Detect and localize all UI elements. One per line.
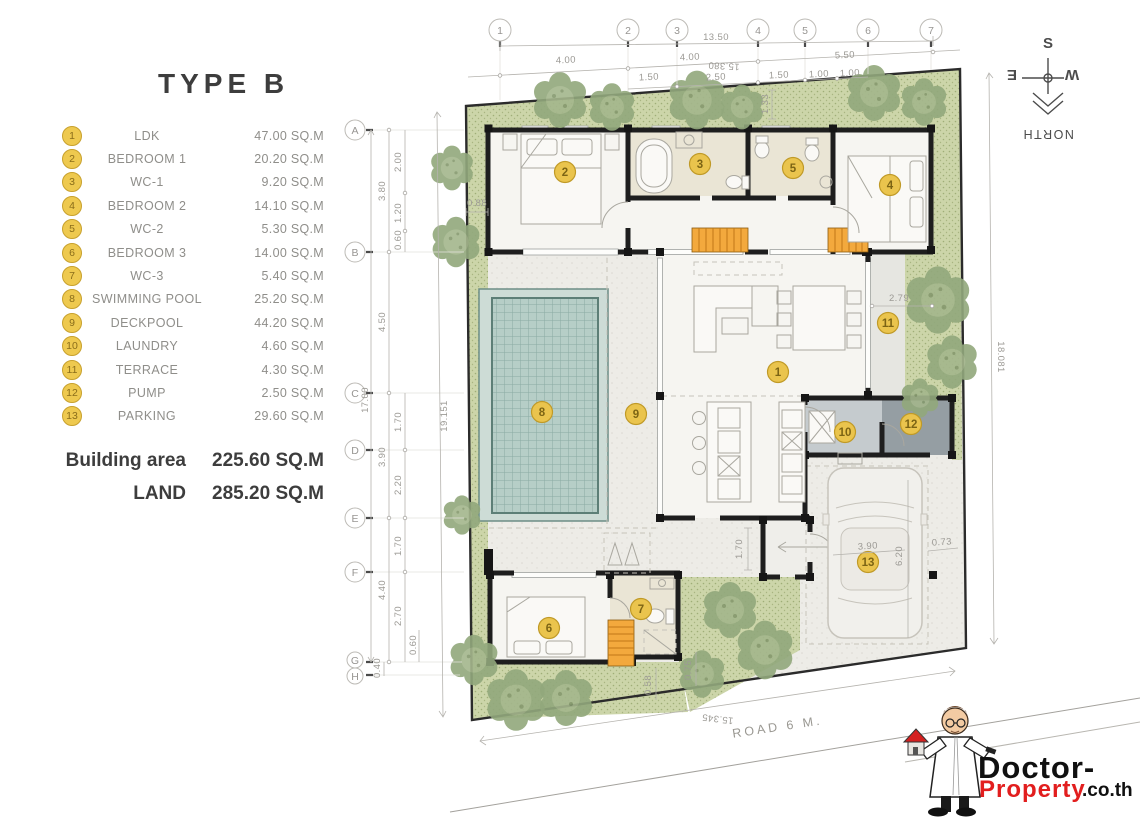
svg-text:1.70: 1.70	[393, 412, 404, 432]
legend-number-badge: 2	[62, 149, 82, 169]
svg-text:3: 3	[674, 25, 680, 37]
svg-text:E: E	[351, 513, 358, 525]
brand-domain-suffix: .co.th	[1082, 780, 1133, 801]
marker-wc3: 7	[631, 599, 652, 620]
svg-text:0.60: 0.60	[408, 635, 419, 655]
legend-number-badge: 11	[62, 360, 82, 380]
svg-text:2.79: 2.79	[889, 293, 909, 304]
legend-room-name: PUMP	[82, 386, 212, 400]
svg-text:D: D	[351, 445, 359, 457]
car-parking	[823, 468, 927, 638]
svg-text:1.33: 1.33	[760, 94, 771, 114]
svg-text:H: H	[351, 671, 359, 683]
grid-row-f: F	[345, 562, 365, 582]
svg-text:0.75: 0.75	[683, 660, 694, 680]
legend-number-badge: 6	[62, 243, 82, 263]
land-area-row: LAND 285.20 SQ.M	[62, 483, 324, 505]
svg-text:2.00: 2.00	[393, 152, 404, 172]
svg-text:4.00: 4.00	[556, 54, 577, 66]
svg-text:2.20: 2.20	[393, 475, 404, 495]
legend-room-area: 47.00 SQ.M	[212, 129, 324, 143]
marker-terrace: 11	[878, 313, 899, 334]
grid-col-4: 4	[747, 19, 769, 41]
marker-deckpool: 9	[626, 404, 647, 425]
building-area-value: 225.60 SQ.M	[198, 450, 324, 472]
area-summary: Building area 225.60 SQ.M LAND 285.20 SQ…	[62, 450, 324, 505]
svg-text:1: 1	[497, 25, 503, 37]
legend-room-name: DECKPOOL	[82, 316, 212, 330]
svg-text:1.70: 1.70	[393, 536, 404, 556]
svg-text:7: 7	[928, 25, 934, 37]
svg-text:1.20: 1.20	[393, 203, 404, 223]
svg-text:1.00: 1.00	[840, 67, 861, 79]
legend-room-area: 29.60 SQ.M	[212, 409, 324, 423]
svg-text:3.80: 3.80	[377, 181, 388, 201]
legend-room-area: 9.20 SQ.M	[212, 175, 324, 189]
compass: S E W NORTH	[1007, 35, 1079, 141]
svg-text:F: F	[352, 567, 358, 579]
watermark-logo: Doctor- Property .co.th	[904, 706, 1140, 817]
washer-laundry	[809, 411, 835, 443]
marker-bedroom2: 4	[880, 175, 901, 196]
legend-room-name: WC-3	[82, 269, 212, 283]
grid-row-b: B	[345, 242, 365, 262]
svg-text:5: 5	[790, 163, 797, 175]
grid-row-d: D	[345, 440, 365, 460]
legend-room-name: LAUNDRY	[82, 339, 212, 353]
legend-room-area: 25.20 SQ.M	[212, 292, 324, 306]
svg-text:17.00: 17.00	[360, 387, 371, 413]
floorplan-page: 1 2 3 4 5 6 7 8 9 10 11 12 13 1 2 3 4 5 …	[0, 0, 1140, 820]
legend-panel: TYPE B 1 LDK 47.00 SQ.M 2 BEDROOM 1 20.2…	[62, 68, 324, 516]
legend-row: 4 BEDROOM 2 14.10 SQ.M	[62, 194, 324, 217]
legend-number-badge: 3	[62, 172, 82, 192]
grid-row-h: H	[347, 668, 363, 684]
marker-bedroom1: 2	[555, 162, 576, 183]
svg-text:3.90: 3.90	[857, 540, 878, 552]
marker-laundry: 10	[835, 422, 856, 443]
legend-room-area: 4.30 SQ.M	[212, 363, 324, 377]
legend-room-name: BEDROOM 3	[82, 246, 212, 260]
svg-text:0.73: 0.73	[931, 536, 952, 548]
compass-south-label: S	[1043, 35, 1053, 52]
legend-row: 3 WC-1 9.20 SQ.M	[62, 171, 324, 194]
legend-row: 6 BEDROOM 3 14.00 SQ.M	[62, 241, 324, 264]
svg-text:0.88: 0.88	[467, 198, 487, 209]
kitchen-island	[693, 402, 806, 502]
svg-text:12: 12	[905, 419, 918, 431]
svg-text:19.151: 19.151	[439, 400, 450, 431]
svg-text:15.345: 15.345	[701, 711, 734, 726]
compass-east-label: E	[1007, 66, 1017, 83]
land-area-label: LAND	[62, 483, 186, 505]
svg-text:6: 6	[546, 623, 552, 635]
bed-bedroom2	[848, 156, 926, 242]
legend-number-badge: 7	[62, 266, 82, 286]
legend-row: 1 LDK 47.00 SQ.M	[62, 124, 324, 147]
legend-room-area: 20.20 SQ.M	[212, 152, 324, 166]
svg-text:13: 13	[862, 557, 875, 569]
grid-col-5: 5	[794, 19, 816, 41]
svg-text:0.58: 0.58	[643, 675, 654, 695]
svg-text:C: C	[351, 388, 359, 400]
marker-ldk: 1	[768, 362, 789, 383]
legend-number-badge: 12	[62, 383, 82, 403]
legend-room-area: 14.00 SQ.M	[212, 246, 324, 260]
legend-room-area: 2.50 SQ.M	[212, 386, 324, 400]
svg-text:G: G	[351, 655, 359, 667]
grid-col-1: 1	[489, 19, 511, 41]
building-area-row: Building area 225.60 SQ.M	[62, 450, 324, 472]
svg-text:1.50: 1.50	[769, 69, 790, 81]
legend-row: 9 DECKPOOL 44.20 SQ.M	[62, 311, 324, 334]
land-area-value: 285.20 SQ.M	[198, 483, 324, 505]
grid-col-3: 3	[666, 19, 688, 41]
marker-wc1: 3	[690, 154, 711, 175]
legend-row: 10 LAUNDRY 4.60 SQ.M	[62, 335, 324, 358]
svg-text:4.00: 4.00	[680, 51, 701, 63]
svg-text:0.40: 0.40	[372, 658, 383, 678]
svg-text:4.50: 4.50	[377, 312, 388, 332]
legend-row: 11 TERRACE 4.30 SQ.M	[62, 358, 324, 381]
marker-parking: 13	[858, 552, 879, 573]
grid-row-g: G	[347, 652, 363, 668]
svg-text:3.90: 3.90	[377, 447, 388, 467]
road-label: ROAD 6 M.	[731, 713, 823, 740]
legend-room-area: 14.10 SQ.M	[212, 199, 324, 213]
page-title: TYPE B	[158, 68, 324, 100]
marker-bedroom3: 6	[539, 618, 560, 639]
legend-room-area: 44.20 SQ.M	[212, 316, 324, 330]
svg-text:4.40: 4.40	[377, 580, 388, 600]
svg-text:2: 2	[562, 167, 568, 179]
legend-number-badge: 9	[62, 313, 82, 333]
legend-room-area: 5.30 SQ.M	[212, 222, 324, 236]
svg-text:2.70: 2.70	[393, 606, 404, 626]
legend-room-name: TERRACE	[82, 363, 212, 377]
legend-room-name: SWIMMING POOL	[82, 292, 212, 306]
svg-text:1.50: 1.50	[639, 71, 660, 83]
svg-text:6: 6	[865, 25, 871, 37]
svg-text:A: A	[351, 125, 358, 137]
svg-text:6.20: 6.20	[894, 546, 905, 566]
svg-text:4: 4	[755, 25, 761, 37]
legend-room-name: WC-2	[82, 222, 212, 236]
svg-text:0.60: 0.60	[393, 230, 404, 250]
legend-row: 12 PUMP 2.50 SQ.M	[62, 381, 324, 404]
svg-text:5: 5	[802, 25, 808, 37]
legend-row: 13 PARKING 29.60 SQ.M	[62, 405, 324, 428]
building-area-label: Building area	[62, 450, 186, 472]
grid-row-e: E	[345, 508, 365, 528]
legend-room-name: BEDROOM 2	[82, 199, 212, 213]
svg-text:15.380: 15.380	[708, 59, 740, 72]
svg-text:1.00: 1.00	[809, 68, 830, 80]
svg-text:4: 4	[887, 180, 894, 192]
legend-room-name: LDK	[82, 129, 212, 143]
svg-text:10: 10	[839, 427, 852, 439]
svg-text:2.50: 2.50	[706, 71, 727, 83]
svg-text:18.081: 18.081	[995, 341, 1006, 372]
grid-row-a: A	[345, 120, 365, 140]
legend-row: 2 BEDROOM 1 20.20 SQ.M	[62, 147, 324, 170]
compass-north-arrow	[1033, 93, 1063, 114]
svg-text:3: 3	[697, 159, 703, 171]
grid-col-7: 7	[920, 19, 942, 41]
svg-text:11: 11	[882, 318, 895, 330]
legend-number-badge: 5	[62, 219, 82, 239]
svg-text:8: 8	[539, 407, 546, 419]
legend-number-badge: 13	[62, 406, 82, 426]
marker-pool: 8	[532, 402, 553, 423]
legend-row: 7 WC-3 5.40 SQ.M	[62, 264, 324, 287]
grid-col-2: 2	[617, 19, 639, 41]
legend-number-badge: 10	[62, 336, 82, 356]
svg-text:7: 7	[638, 604, 644, 616]
legend-number-badge: 4	[62, 196, 82, 216]
legend-number-badge: 1	[62, 126, 82, 146]
svg-text:9: 9	[633, 409, 639, 421]
legend-list: 1 LDK 47.00 SQ.M 2 BEDROOM 1 20.20 SQ.M …	[62, 124, 324, 428]
compass-north-label: NORTH	[1022, 127, 1074, 141]
svg-text:2: 2	[625, 25, 631, 37]
marker-pump: 12	[901, 414, 922, 435]
svg-text:13.50: 13.50	[703, 32, 729, 43]
legend-room-area: 5.40 SQ.M	[212, 269, 324, 283]
legend-row: 5 WC-2 5.30 SQ.M	[62, 218, 324, 241]
legend-room-name: WC-1	[82, 175, 212, 189]
legend-number-badge: 8	[62, 289, 82, 309]
svg-text:1: 1	[775, 367, 782, 379]
brand-name-bottom: Property	[979, 776, 1086, 803]
marker-wc2: 5	[783, 158, 804, 179]
compass-west-label: W	[1064, 66, 1079, 83]
svg-text:5.50: 5.50	[835, 49, 856, 61]
svg-text:B: B	[351, 247, 358, 259]
legend-room-name: PARKING	[82, 409, 212, 423]
legend-row: 8 SWIMMING POOL 25.20 SQ.M	[62, 288, 324, 311]
grid-col-6: 6	[857, 19, 879, 41]
legend-room-area: 4.60 SQ.M	[212, 339, 324, 353]
svg-text:1.70: 1.70	[734, 539, 745, 559]
legend-room-name: BEDROOM 1	[82, 152, 212, 166]
